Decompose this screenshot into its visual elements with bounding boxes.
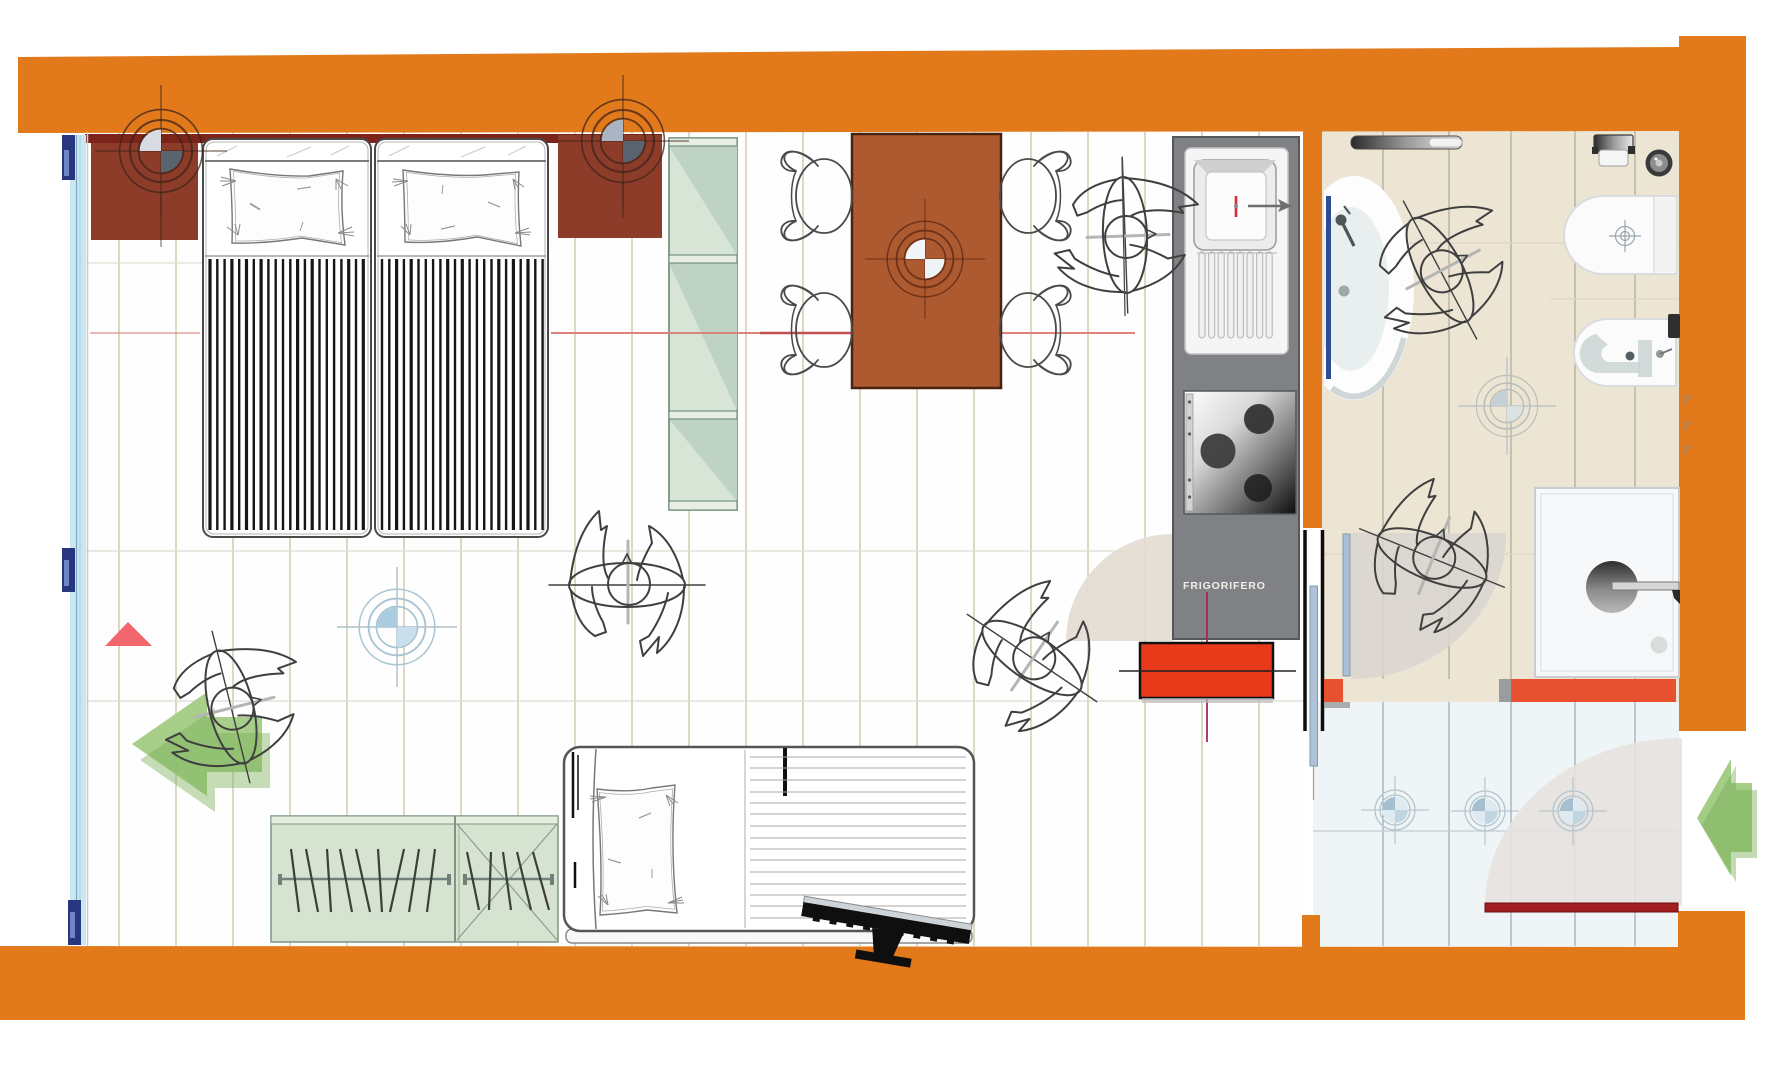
svg-text:FRIGORIFERO: FRIGORIFERO <box>1183 580 1266 592</box>
